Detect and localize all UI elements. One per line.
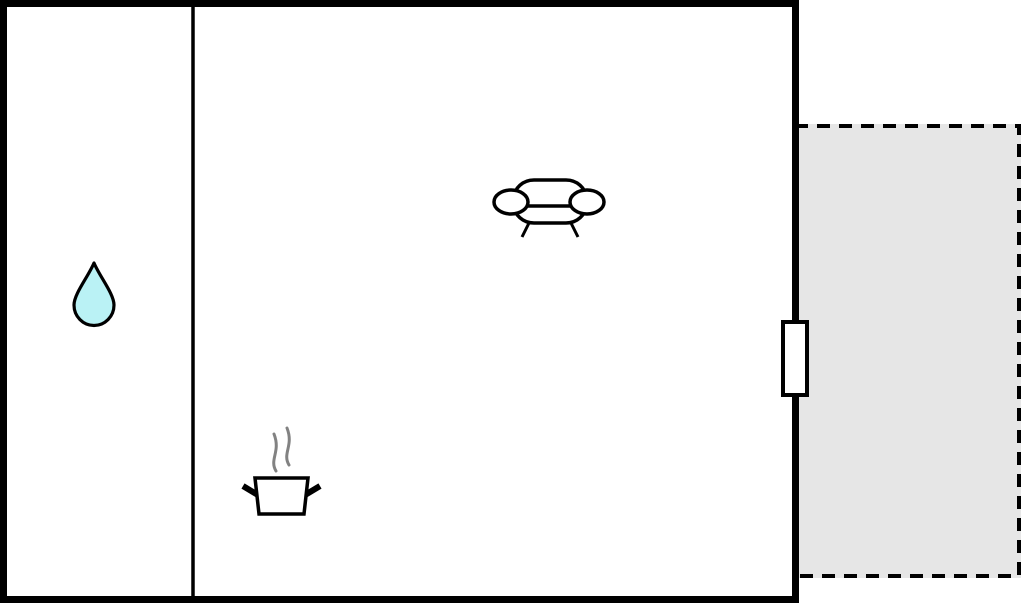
terrace-area: [795, 124, 1021, 578]
floorplan-canvas: [0, 0, 1024, 603]
apartment-outline: [4, 4, 796, 600]
sofa-right-armrest: [570, 190, 604, 214]
floorplan-page: [0, 0, 1024, 603]
door: [783, 322, 807, 395]
sofa-left-armrest: [494, 190, 528, 214]
pot-body: [255, 478, 308, 514]
terrace-floor: [795, 124, 1021, 578]
